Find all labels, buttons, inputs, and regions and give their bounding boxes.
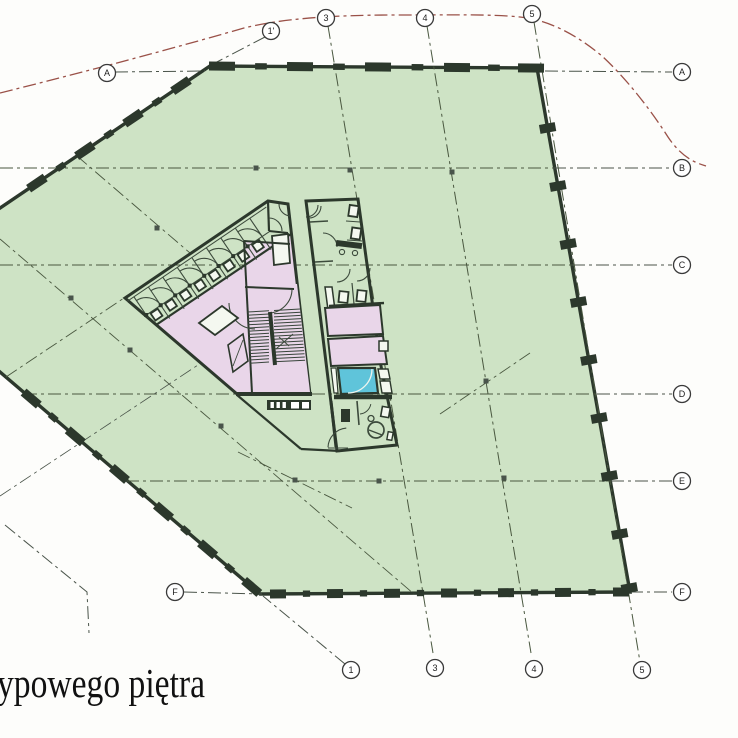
svg-text:F: F [679, 587, 685, 597]
svg-text:5: 5 [639, 665, 644, 675]
svg-text:ypowego piętra: ypowego piętra [0, 660, 205, 706]
svg-text:1': 1' [268, 26, 275, 36]
svg-text:1: 1 [348, 665, 353, 675]
svg-text:E: E [679, 476, 685, 486]
svg-text:A: A [104, 68, 110, 78]
svg-text:A: A [679, 67, 685, 77]
svg-text:B: B [679, 163, 685, 173]
svg-text:3: 3 [323, 13, 328, 23]
svg-text:F: F [172, 587, 178, 597]
svg-text:3: 3 [432, 663, 437, 673]
svg-text:D: D [679, 389, 686, 399]
svg-text:4: 4 [422, 13, 427, 23]
svg-text:4: 4 [531, 664, 536, 674]
svg-text:C: C [679, 260, 686, 270]
svg-text:5: 5 [529, 9, 534, 19]
